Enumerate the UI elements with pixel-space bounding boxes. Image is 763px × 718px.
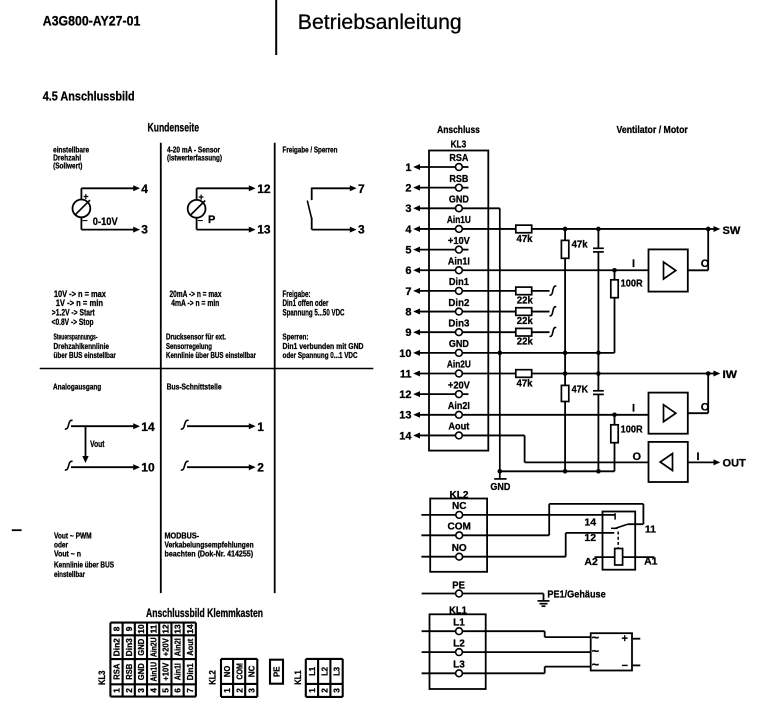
svg-text:3: 3 xyxy=(141,223,148,237)
svg-text:SW: SW xyxy=(723,225,742,237)
svg-text:22k: 22k xyxy=(517,337,533,348)
svg-text:+: + xyxy=(622,633,628,645)
svg-text:11: 11 xyxy=(148,624,158,633)
svg-text:Ventilator / Motor: Ventilator / Motor xyxy=(617,125,688,136)
svg-text:A2: A2 xyxy=(584,556,598,568)
svg-text:Steuerspannungs-: Steuerspannungs- xyxy=(54,333,98,342)
svg-text:3: 3 xyxy=(405,203,411,215)
svg-text:4.5 Anschlussbild: 4.5 Anschlussbild xyxy=(43,89,135,104)
svg-text:L2: L2 xyxy=(453,638,465,649)
svg-text:Betriebsanleitung: Betriebsanleitung xyxy=(298,10,462,34)
svg-text:Aout: Aout xyxy=(185,639,195,656)
svg-text:L1: L1 xyxy=(453,617,465,628)
svg-text:MODBUS-: MODBUS- xyxy=(165,532,200,541)
svg-text:Vout ~ n: Vout ~ n xyxy=(54,550,81,559)
svg-text:100R: 100R xyxy=(621,424,644,435)
svg-text:2: 2 xyxy=(124,688,134,693)
svg-text:4: 4 xyxy=(141,182,148,196)
svg-text:RSB: RSB xyxy=(449,174,468,185)
svg-text:GND: GND xyxy=(136,663,146,680)
svg-text:Vout ~ PWM: Vout ~ PWM xyxy=(54,532,92,541)
svg-text:47k: 47k xyxy=(517,379,533,390)
svg-text:Sperren:: Sperren: xyxy=(283,333,309,342)
svg-text:GND: GND xyxy=(449,195,469,206)
svg-text:Bus-Schnittstelle: Bus-Schnittstelle xyxy=(167,383,223,392)
svg-text:3: 3 xyxy=(332,688,342,693)
svg-text:Spannung 5...50 VDC: Spannung 5...50 VDC xyxy=(283,308,345,318)
svg-text:A3G800-AY27-01: A3G800-AY27-01 xyxy=(43,12,141,28)
svg-text:9: 9 xyxy=(124,626,134,631)
svg-text:KL2: KL2 xyxy=(450,490,469,501)
svg-text:5: 5 xyxy=(161,688,171,693)
svg-text:Din2: Din2 xyxy=(448,298,469,309)
svg-text:O: O xyxy=(701,258,710,270)
svg-text:I: I xyxy=(697,451,700,463)
svg-text:Ain1I: Ain1I xyxy=(448,256,470,267)
svg-text:NC: NC xyxy=(452,501,466,512)
svg-text:KL3: KL3 xyxy=(97,671,107,686)
svg-text:14: 14 xyxy=(185,624,195,634)
svg-text:Anschlussbild Klemmkasten: Anschlussbild Klemmkasten xyxy=(146,608,263,620)
svg-text:Vout: Vout xyxy=(90,439,105,450)
svg-text:L2: L2 xyxy=(319,667,329,676)
svg-text:PE1/Gehäuse: PE1/Gehäuse xyxy=(547,588,605,600)
svg-text:8: 8 xyxy=(405,306,411,318)
svg-text:10: 10 xyxy=(141,461,155,475)
svg-text:I: I xyxy=(632,403,635,415)
svg-text:oder: oder xyxy=(54,541,68,550)
svg-text:12: 12 xyxy=(584,532,596,544)
svg-text:47k: 47k xyxy=(517,234,533,245)
svg-text:Din3: Din3 xyxy=(448,318,469,329)
svg-text:OUT: OUT xyxy=(723,457,747,469)
svg-text:+20V: +20V xyxy=(448,380,470,391)
svg-text:L1: L1 xyxy=(307,667,317,676)
svg-text:Sensorregelung: Sensorregelung xyxy=(166,342,212,351)
svg-text:2: 2 xyxy=(405,183,411,195)
svg-text:beachten (Dok-Nr. 414255): beachten (Dok-Nr. 414255) xyxy=(165,550,254,559)
svg-text:Ain2U: Ain2U xyxy=(447,360,471,371)
svg-text:Analogausgang: Analogausgang xyxy=(53,383,101,392)
svg-text:(Istwerterfassung): (Istwerterfassung) xyxy=(167,154,222,163)
svg-text:22k: 22k xyxy=(517,316,533,327)
svg-text:10: 10 xyxy=(136,624,146,634)
svg-text:RSB: RSB xyxy=(124,664,134,680)
svg-text:Din1 verbunden mit GND: Din1 verbunden mit GND xyxy=(283,342,364,351)
svg-text:+20V: +20V xyxy=(161,638,171,656)
svg-text:1: 1 xyxy=(112,688,122,693)
svg-text:Ain1I: Ain1I xyxy=(173,663,183,680)
svg-text:KL3: KL3 xyxy=(451,139,467,150)
svg-text:9: 9 xyxy=(405,327,411,339)
svg-text:Ain1U: Ain1U xyxy=(148,662,158,682)
svg-text:GND: GND xyxy=(136,639,146,656)
svg-text:13: 13 xyxy=(173,624,183,634)
svg-text:2: 2 xyxy=(319,688,329,693)
svg-text:Aout: Aout xyxy=(448,422,470,433)
svg-text:1: 1 xyxy=(257,420,264,434)
svg-text:Din1: Din1 xyxy=(449,277,469,288)
svg-text:4: 4 xyxy=(405,224,412,236)
svg-text:Verkabelungsempfehlungen: Verkabelungsempfehlungen xyxy=(165,541,254,550)
svg-text:12: 12 xyxy=(161,624,171,634)
svg-text:2: 2 xyxy=(234,688,244,693)
svg-text:Din1: Din1 xyxy=(185,663,195,680)
svg-text:Ain2U: Ain2U xyxy=(148,637,158,657)
svg-text:<0.8V -> Stop: <0.8V -> Stop xyxy=(52,317,94,327)
svg-text:NO: NO xyxy=(452,543,467,554)
svg-text:5: 5 xyxy=(405,245,411,257)
svg-text:einstellbar: einstellbar xyxy=(54,570,85,579)
svg-text:RSA: RSA xyxy=(449,153,468,164)
svg-text:NO: NO xyxy=(222,665,232,677)
svg-text:7: 7 xyxy=(358,182,365,196)
svg-text:6: 6 xyxy=(405,265,411,277)
svg-text:–: – xyxy=(82,215,87,226)
svg-text:14: 14 xyxy=(399,430,412,442)
svg-text:I: I xyxy=(632,258,635,270)
svg-text:13: 13 xyxy=(257,223,271,237)
svg-text:14: 14 xyxy=(141,420,155,434)
svg-text:47K: 47K xyxy=(572,384,589,395)
svg-text:GND: GND xyxy=(449,339,469,350)
svg-text:7: 7 xyxy=(405,286,411,298)
svg-text:4mA -> n = min: 4mA -> n = min xyxy=(171,298,219,308)
svg-text:+: + xyxy=(83,191,88,201)
svg-text:IW: IW xyxy=(723,369,738,381)
svg-text:1: 1 xyxy=(405,162,411,174)
svg-text:COM: COM xyxy=(448,522,471,533)
svg-text:P: P xyxy=(208,214,215,226)
svg-text:1: 1 xyxy=(307,688,317,693)
svg-text:A1: A1 xyxy=(644,556,658,568)
svg-text:0-10V: 0-10V xyxy=(93,216,118,228)
svg-text:über BUS einstellbar: über BUS einstellbar xyxy=(54,351,116,360)
svg-text:11: 11 xyxy=(400,368,412,380)
svg-text:Ain1U: Ain1U xyxy=(447,215,471,226)
svg-text:O: O xyxy=(633,451,642,463)
svg-text:6: 6 xyxy=(173,688,183,693)
svg-text:Din3: Din3 xyxy=(124,638,134,656)
svg-text:KL1: KL1 xyxy=(293,670,303,685)
svg-text:+: + xyxy=(199,192,204,202)
svg-text:O: O xyxy=(701,402,710,414)
svg-text:4: 4 xyxy=(148,688,158,693)
svg-text:Ain2I: Ain2I xyxy=(448,401,470,412)
svg-text:13: 13 xyxy=(399,410,411,422)
svg-text:(Sollwert): (Sollwert) xyxy=(53,162,83,171)
svg-text:12: 12 xyxy=(399,389,411,401)
svg-text:–: – xyxy=(622,659,628,671)
svg-text:47k: 47k xyxy=(572,239,588,250)
svg-text:Drehzahlkennlinie: Drehzahlkennlinie xyxy=(54,342,110,351)
svg-text:+10V: +10V xyxy=(448,236,470,247)
svg-text:L3: L3 xyxy=(332,667,342,676)
svg-text:~: ~ xyxy=(592,645,599,659)
svg-text:+10V: +10V xyxy=(161,662,171,680)
svg-text:3: 3 xyxy=(358,223,365,237)
svg-text:Din2: Din2 xyxy=(112,638,122,656)
svg-text:Kennlinie über BUS: Kennlinie über BUS xyxy=(54,561,114,570)
svg-text:GND: GND xyxy=(490,481,510,493)
svg-text:PE: PE xyxy=(272,666,282,677)
svg-text:3: 3 xyxy=(136,688,146,693)
svg-text:RSA: RSA xyxy=(112,664,122,680)
svg-text:–: – xyxy=(198,215,203,226)
svg-text:KL2: KL2 xyxy=(208,670,218,685)
svg-text:3: 3 xyxy=(246,688,256,693)
svg-text:10: 10 xyxy=(399,348,411,360)
svg-text:~: ~ xyxy=(592,658,599,672)
svg-text:12: 12 xyxy=(257,182,271,196)
svg-text:11: 11 xyxy=(645,523,656,535)
svg-text:Freigabe / Sperren: Freigabe / Sperren xyxy=(283,146,338,155)
svg-text:8: 8 xyxy=(112,626,122,631)
svg-text:NC: NC xyxy=(246,666,256,678)
svg-text:COM: COM xyxy=(234,663,244,680)
svg-text:22k: 22k xyxy=(517,295,533,306)
svg-text:L3: L3 xyxy=(453,660,465,671)
svg-text:oder Spannung 0...1 VDC: oder Spannung 0...1 VDC xyxy=(283,351,358,360)
svg-text:Kundenseite: Kundenseite xyxy=(148,122,200,134)
svg-text:Ain2I: Ain2I xyxy=(173,638,183,656)
svg-text:2: 2 xyxy=(257,461,264,475)
svg-text:~: ~ xyxy=(592,631,599,645)
svg-text:1: 1 xyxy=(222,688,232,693)
svg-text:Drucksensor für ext.: Drucksensor für ext. xyxy=(166,333,226,342)
svg-text:14: 14 xyxy=(584,517,596,529)
svg-text:Kennlinie über BUS einstellbar: Kennlinie über BUS einstellbar xyxy=(166,351,256,360)
svg-text:100R: 100R xyxy=(621,279,644,290)
svg-text:7: 7 xyxy=(185,688,195,693)
svg-text:Anschluss: Anschluss xyxy=(437,125,480,136)
